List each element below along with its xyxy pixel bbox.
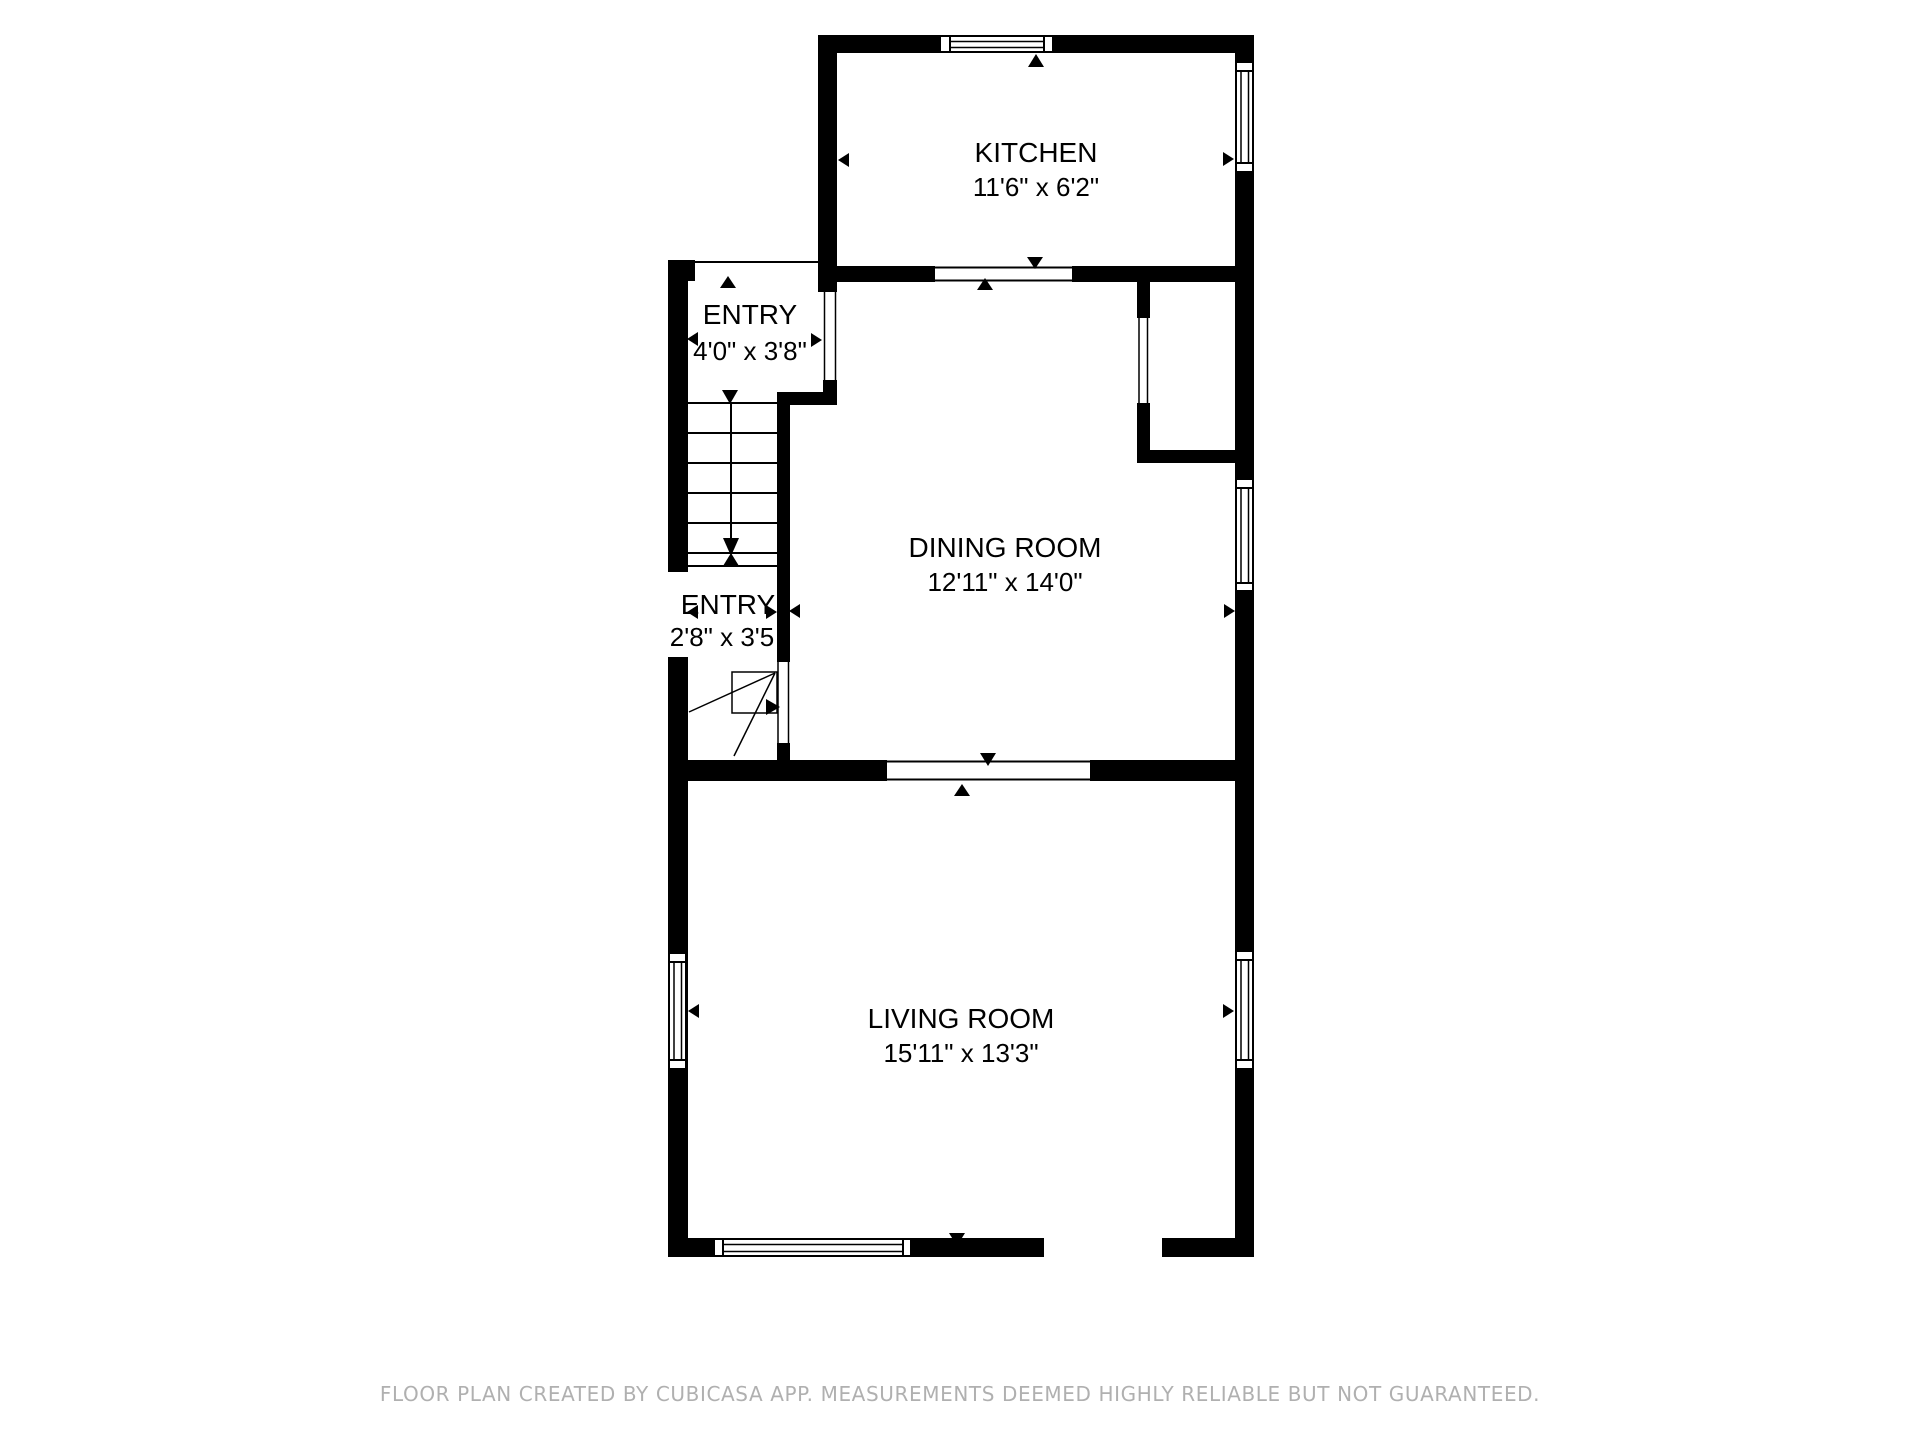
room-dimensions: 2'8" x 3'5 <box>670 622 774 652</box>
window-living-bottom <box>714 1239 911 1256</box>
wall <box>1072 266 1235 282</box>
door-arrow <box>723 553 739 566</box>
window-arrow <box>1028 54 1044 67</box>
wall <box>668 260 695 281</box>
door-arrow <box>720 276 736 288</box>
dimension-arrow <box>688 1004 699 1018</box>
room-label-living-room: LIVING ROOM 15'11" x 13'3" <box>868 1003 1055 1068</box>
winder-stairs <box>689 672 780 756</box>
dimension-arrow <box>1223 152 1234 166</box>
room-name: KITCHEN <box>975 137 1098 168</box>
dimension-arrow <box>1223 1004 1234 1018</box>
room-label-kitchen: KITCHEN 11'6" x 6'2" <box>973 137 1099 202</box>
wall <box>668 260 688 1257</box>
window-kitchen-top <box>940 36 1053 52</box>
disclaimer-text: FLOOR PLAN CREATED BY CUBICASA APP. MEAS… <box>380 1382 1540 1406</box>
window-living-right <box>1236 951 1253 1069</box>
wall <box>1137 278 1150 318</box>
dimension-arrow <box>811 333 822 347</box>
dimension-arrow <box>789 604 800 618</box>
wall <box>1090 760 1235 781</box>
floor-plan-page: KITCHEN 11'6" x 6'2" ENTRY 4'0" x 3'8" D… <box>0 0 1920 1440</box>
wall <box>1137 450 1235 463</box>
wall <box>818 266 935 282</box>
wall <box>1235 35 1254 1257</box>
room-label-dining-room: DINING ROOM 12'11" x 14'0" <box>909 532 1102 597</box>
door-arrow <box>954 784 970 796</box>
room-label-entry-upper: ENTRY 4'0" x 3'8" <box>693 299 807 366</box>
door-arrow <box>722 390 738 404</box>
bottom-door-opening <box>1044 1236 1162 1259</box>
room-dimensions: 4'0" x 3'8" <box>693 336 807 366</box>
dimension-arrow <box>838 153 849 167</box>
wall <box>777 743 790 762</box>
floor-plan-canvas: KITCHEN 11'6" x 6'2" ENTRY 4'0" x 3'8" D… <box>0 0 1920 1440</box>
wall <box>777 392 790 662</box>
window-kitchen-right <box>1236 62 1253 172</box>
window-arrow <box>1224 604 1235 618</box>
room-name: ENTRY <box>681 589 776 620</box>
window-dining-right <box>1236 479 1253 591</box>
room-name: ENTRY <box>703 299 798 330</box>
room-dimensions: 11'6" x 6'2" <box>973 172 1099 202</box>
room-dimensions: 15'11" x 13'3" <box>883 1038 1038 1068</box>
wall <box>668 760 887 781</box>
window-living-left <box>669 953 686 1069</box>
room-dimensions: 12'11" x 14'0" <box>927 567 1082 597</box>
room-name: LIVING ROOM <box>868 1003 1055 1034</box>
room-name: DINING ROOM <box>909 532 1102 563</box>
staircase <box>688 403 777 566</box>
door-arrow <box>980 753 996 766</box>
wall <box>818 35 837 292</box>
